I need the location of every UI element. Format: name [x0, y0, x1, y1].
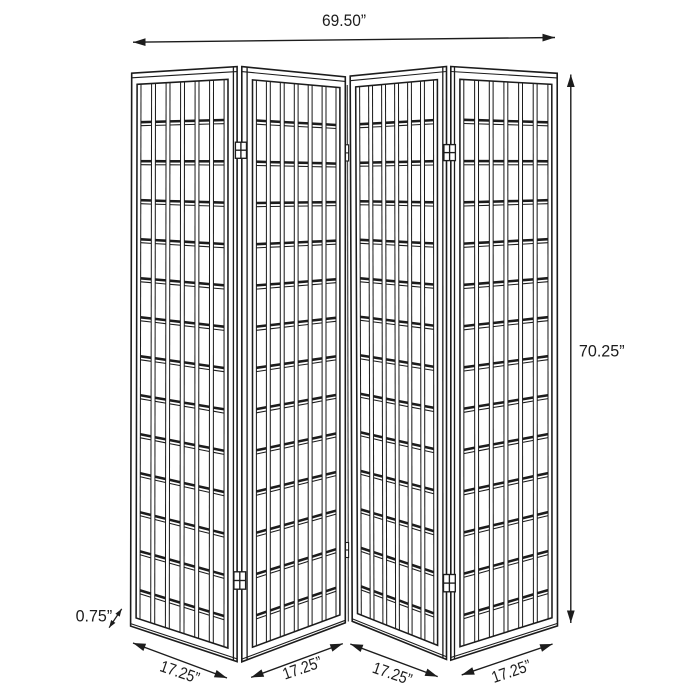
svg-text:0.75”: 0.75” [76, 607, 113, 625]
svg-text:69.50”: 69.50” [322, 12, 366, 30]
svg-text:70.25”: 70.25” [579, 343, 625, 361]
